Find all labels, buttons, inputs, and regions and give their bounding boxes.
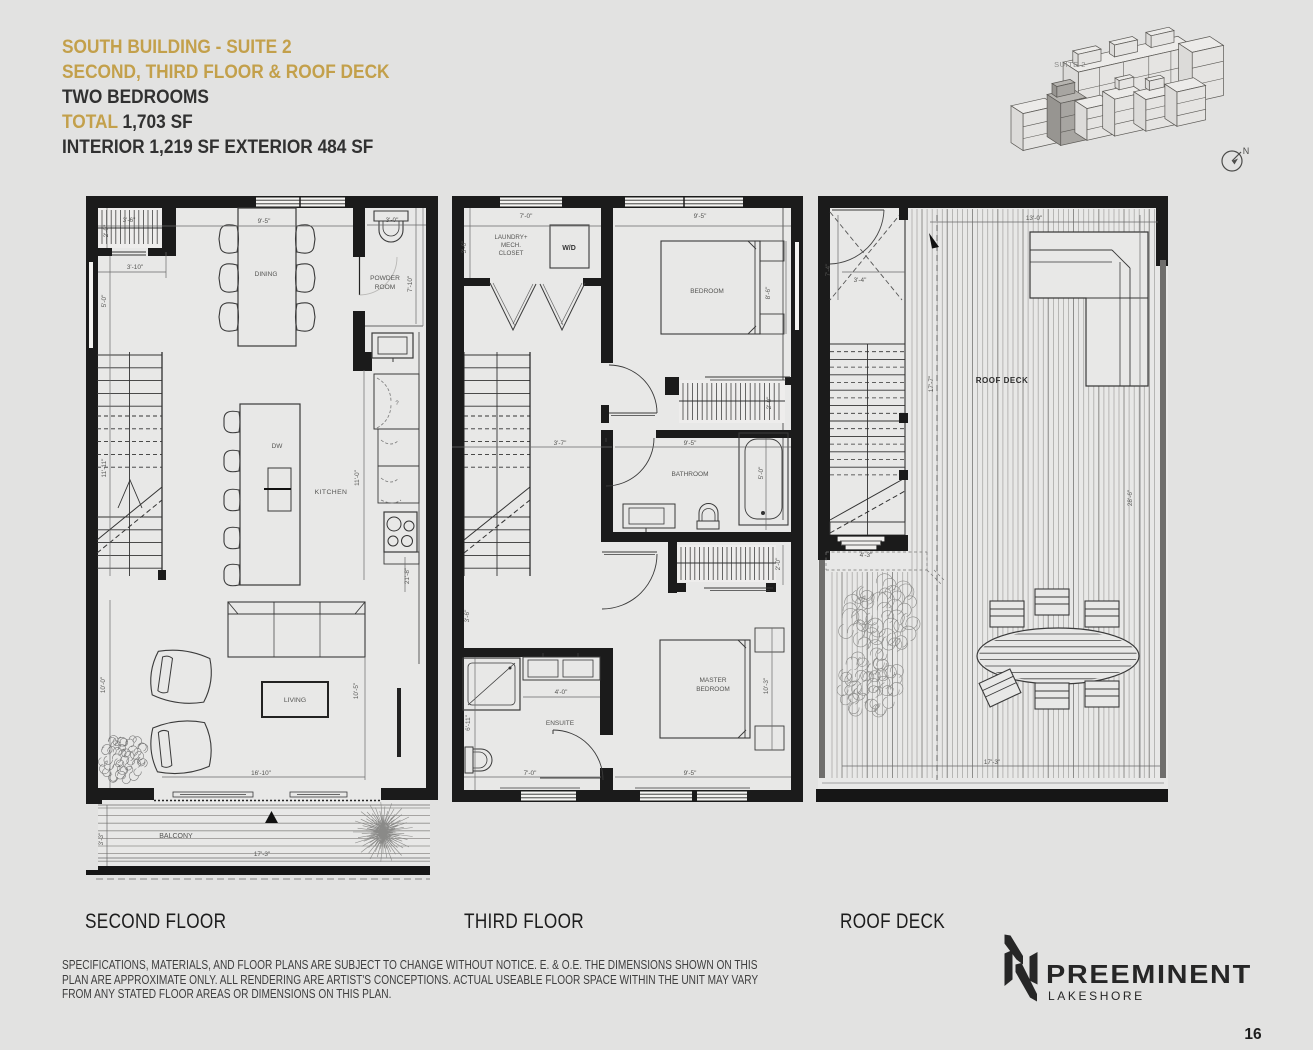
svg-text:BEDROOM: BEDROOM [696, 686, 730, 693]
svg-text:17'-3": 17'-3" [984, 759, 1000, 766]
svg-text:DINING: DINING [255, 271, 278, 278]
svg-text:4'-3": 4'-3" [860, 552, 873, 559]
svg-text:MASTER: MASTER [699, 677, 726, 684]
svg-text:2'-0": 2'-0" [766, 397, 773, 410]
svg-text:SECOND FLOOR: SECOND FLOOR [85, 909, 226, 933]
svg-text:9'-5": 9'-5" [684, 770, 697, 777]
svg-text:5'-0": 5'-0" [758, 467, 765, 480]
svg-text:4'-0": 4'-0" [555, 689, 568, 696]
svg-text:3'-10": 3'-10" [127, 264, 143, 271]
svg-text:16: 16 [1244, 1026, 1262, 1043]
svg-text:5'-0": 5'-0" [101, 295, 108, 308]
svg-text:10'-5": 10'-5" [353, 683, 360, 699]
svg-text:ROOF DECK: ROOF DECK [840, 909, 945, 933]
svg-text:3'-6": 3'-6" [464, 610, 471, 623]
svg-text:LAUNDRY+: LAUNDRY+ [494, 234, 527, 241]
svg-text:THIRD FLOOR: THIRD FLOOR [464, 909, 584, 933]
svg-text:7'-0": 7'-0" [524, 770, 537, 777]
svg-text:ENSUITE: ENSUITE [546, 720, 575, 727]
svg-text:DW: DW [272, 443, 284, 450]
svg-text:9'-5": 9'-5" [258, 218, 271, 225]
svg-text:10'-0": 10'-0" [100, 677, 107, 693]
svg-text:POWDER: POWDER [370, 275, 400, 282]
svg-text:3'-6": 3'-6" [123, 217, 136, 224]
svg-text:3'-7": 3'-7" [554, 440, 567, 447]
svg-text:SUITE 2: SUITE 2 [1054, 60, 1086, 69]
svg-text:7'-10": 7'-10" [407, 276, 414, 292]
svg-text:BALCONY: BALCONY [159, 833, 193, 840]
svg-text:3'-6": 3'-6" [461, 241, 468, 254]
svg-text:7'-0": 7'-0" [520, 213, 533, 220]
svg-text:21'-8": 21'-8" [404, 568, 411, 584]
svg-text:2'-0": 2'-0" [103, 225, 110, 238]
svg-text:LIVING: LIVING [284, 697, 306, 704]
svg-text:3'-3": 3'-3" [98, 833, 105, 846]
svg-text:16'-10": 16'-10" [251, 770, 271, 777]
svg-text:7'-4": 7'-4" [825, 264, 832, 277]
svg-text:N: N [1243, 146, 1250, 156]
svg-text:28'-6": 28'-6" [1127, 490, 1134, 506]
svg-text:CLOSET: CLOSET [499, 250, 524, 257]
svg-text:BEDROOM: BEDROOM [690, 288, 724, 295]
svg-text:13'-0": 13'-0" [1026, 215, 1042, 222]
svg-text:8'-6": 8'-6" [765, 287, 772, 300]
svg-text:17'-3": 17'-3" [254, 851, 270, 858]
svg-text:2'-0": 2'-0" [775, 558, 782, 571]
svg-text:3'-0": 3'-0" [386, 217, 399, 224]
svg-text:9'-5": 9'-5" [694, 213, 707, 220]
svg-text:11'-0": 11'-0" [354, 470, 361, 486]
svg-text:ROOF DECK: ROOF DECK [976, 376, 1029, 385]
svg-text:3'-4": 3'-4" [854, 277, 867, 284]
svg-text:9'-5": 9'-5" [684, 440, 697, 447]
svg-text:BATHROOM: BATHROOM [671, 471, 708, 478]
svg-text:10'-3": 10'-3" [763, 678, 770, 694]
svg-text:MECH.: MECH. [501, 242, 521, 249]
svg-text:11'-11": 11'-11" [101, 459, 108, 478]
svg-text:6'-11": 6'-11" [465, 715, 472, 731]
svg-text:W/D: W/D [562, 245, 576, 252]
svg-text:KITCHEN: KITCHEN [315, 489, 348, 496]
svg-text:ROOM: ROOM [375, 284, 396, 291]
svg-text:17'-7": 17'-7" [928, 376, 935, 392]
